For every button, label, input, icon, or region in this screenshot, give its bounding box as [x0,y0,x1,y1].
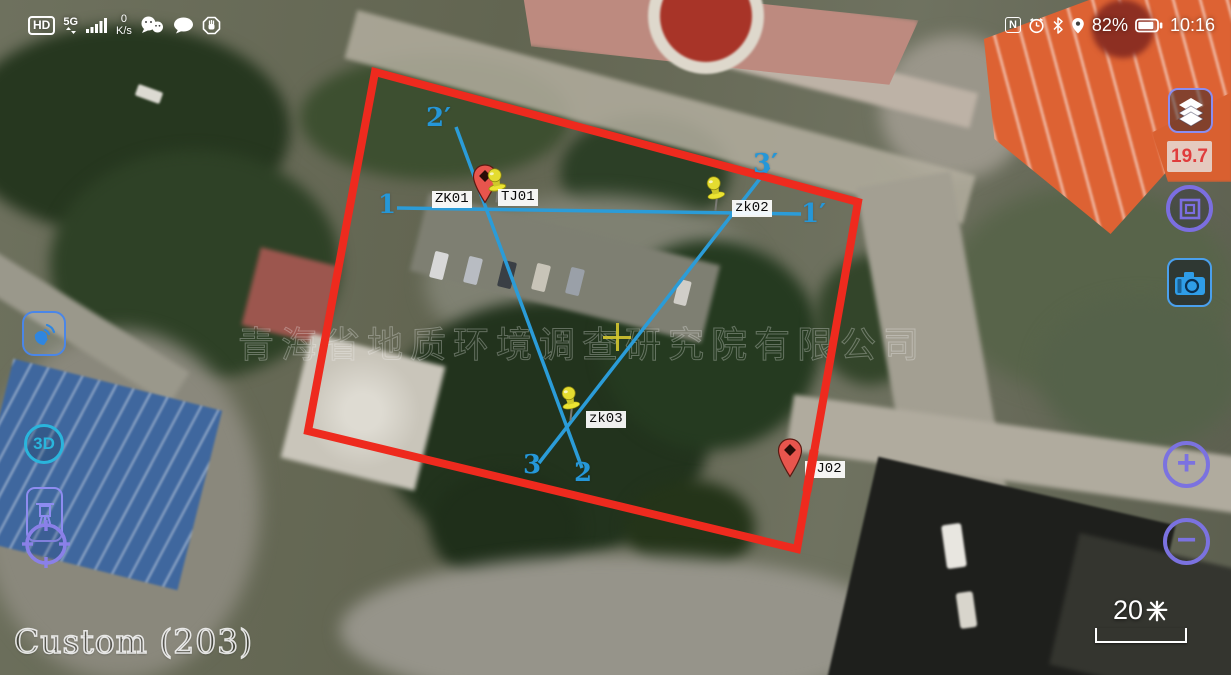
signal-bars-icon [86,17,108,33]
scale-number: 20 [1113,595,1143,626]
camera-icon [1173,269,1207,297]
location-icon [1071,17,1085,34]
alarm-clock-icon [1028,17,1045,34]
battery-icon [1135,18,1163,33]
marker-label[interactable]: zk02 [732,200,772,217]
status-bar-left: HD 5G 0 K/s [28,9,221,41]
minus-icon: − [1177,525,1197,555]
line-endpoint-label: 1′ [801,199,826,229]
status-bar-right: N 82% 10:16 [1005,11,1215,39]
network-type-label: 5G [63,17,78,27]
do-not-disturb-hand-icon [202,16,221,35]
layers-button[interactable] [1168,88,1213,133]
red-pin-icon[interactable] [777,438,803,478]
nested-squares-icon [1177,196,1203,222]
line-endpoint-label: 1 [378,190,396,220]
speed-unit: K/s [116,25,132,37]
zoom-in-button[interactable]: + [1163,441,1210,488]
layers-icon [1175,95,1207,127]
camera-button[interactable] [1167,258,1212,307]
marker-label[interactable]: zk03 [586,411,626,428]
scale-label: 20 [1095,595,1187,626]
line-endpoint-label: 2′ [426,103,451,133]
multi-frame-button[interactable] [1166,185,1213,232]
center-target-button[interactable] [20,517,72,571]
line-endpoint-label: 3 [523,450,541,480]
map-scale: 20 [1095,595,1187,643]
meter-unit-glyph [1145,599,1169,623]
three-d-button[interactable]: 3D [24,424,64,464]
zoom-out-button[interactable]: − [1163,518,1210,565]
scale-bar [1095,628,1187,643]
center-cross-icon [603,323,631,351]
clock-label: 10:16 [1170,15,1215,36]
crosshair-icon [20,517,72,571]
yellow-pushpin-icon[interactable] [703,176,729,212]
line-endpoint-label: 2 [574,458,592,488]
marker-label[interactable]: ZK01 [432,191,472,208]
satellite-signal-icon [29,319,59,349]
altitude-badge: 19.7 [1167,141,1212,172]
speed-value: 0 [121,13,127,25]
plus-icon: + [1177,448,1197,478]
map-attribution: Custom (203) [14,622,253,661]
yellow-pushpin-icon[interactable] [558,386,584,422]
satellite-button[interactable] [22,311,66,356]
nfc-icon: N [1005,17,1021,33]
network-indicator: 5G [63,17,78,34]
marker-label[interactable]: TJ01 [498,189,538,206]
message-bubble-icon [173,17,194,34]
bluetooth-icon [1052,17,1064,34]
hd-badge: HD [28,16,55,35]
updown-arrows-icon [66,27,76,34]
wechat-icon [140,16,165,34]
network-speed: 0 K/s [116,13,132,37]
line-endpoint-label: 3′ [753,149,778,179]
three-d-label: 3D [33,434,55,454]
battery-percent-label: 82% [1092,15,1128,36]
